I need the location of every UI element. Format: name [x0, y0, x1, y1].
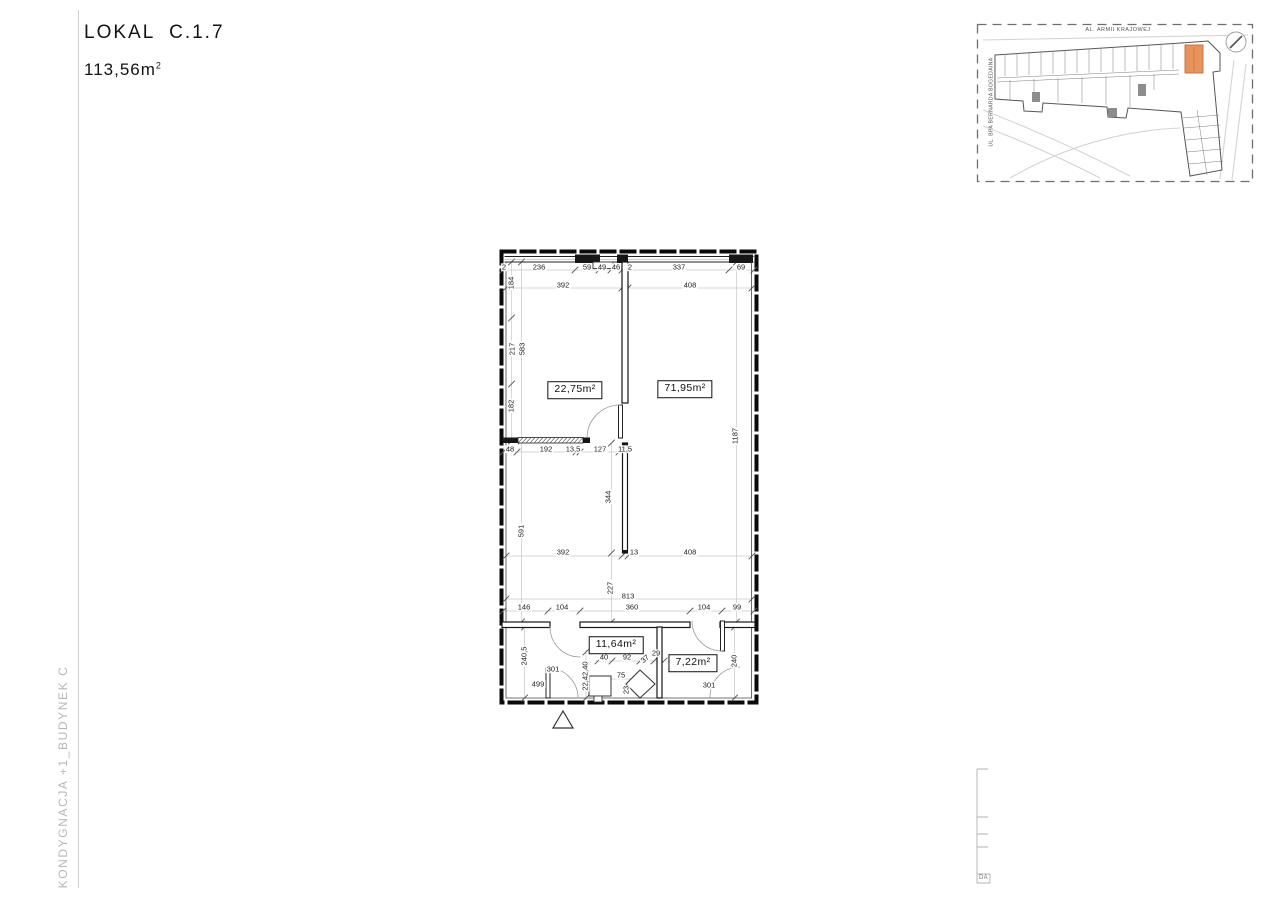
dimension-label: 240,5	[520, 646, 528, 667]
dimension-label: 146	[517, 603, 532, 611]
dimension-label: 192	[539, 445, 554, 453]
dimension-label: 104	[555, 603, 570, 611]
dimension-label: 240	[730, 654, 738, 669]
street-label-top: AL. ARMII KRAJOWEJ	[1058, 27, 1178, 33]
dimension-label: 227	[606, 581, 614, 596]
dimension-label: 127	[593, 445, 608, 453]
room-area-label: 22,75m²	[547, 381, 602, 399]
entrance-marker-icon	[553, 711, 573, 728]
area-value: 113,56m	[84, 60, 156, 79]
dimension-label: 1187	[731, 427, 739, 445]
dimension-label: 499	[531, 680, 546, 688]
north-arrow-icon	[1226, 32, 1246, 52]
room-area-label: 7,22m²	[668, 654, 717, 672]
street-label-left: UL. BPA BERNARDA BOGEDAINA	[989, 45, 995, 160]
dimension-label: 408	[683, 281, 698, 289]
dimension-label: 344	[604, 490, 612, 505]
dimension-label: 22,42,40	[581, 660, 589, 691]
area-superscript: 2	[156, 60, 162, 70]
dimension-label: 360	[625, 603, 640, 611]
page-title: LOKAL C.1.7	[84, 22, 225, 44]
dimension-label: 184	[507, 276, 515, 291]
highlighted-unit	[1185, 45, 1203, 73]
title-block	[977, 769, 990, 883]
dimension-label: 46	[611, 263, 621, 271]
dimension-label: 408	[683, 548, 698, 556]
dimension-label: 99	[732, 603, 742, 611]
dimension-label: 13	[629, 548, 639, 556]
dimension-label: 217	[508, 342, 516, 357]
dimension-label: 301	[702, 681, 717, 689]
drawing-linework	[0, 0, 1280, 905]
dimension-label: 23	[622, 685, 630, 695]
dimension-label: 583	[518, 342, 526, 357]
dimension-label: 392	[556, 548, 571, 556]
dimension-label: 13,5	[565, 445, 582, 453]
dimension-label: 69	[736, 263, 746, 271]
dimension-label: 75	[616, 671, 626, 679]
title-block-label: DA	[979, 875, 988, 881]
dimension-label: 236	[532, 263, 547, 271]
dimension-label: 337	[672, 263, 687, 271]
unit-area: 113,56m2	[84, 60, 162, 80]
dimension-label: 591	[517, 524, 525, 539]
floor-building-label: KONDYGNACJA +1_BUDYNEK C	[56, 661, 70, 893]
dimension-label: 40	[599, 653, 609, 661]
dimension-label: 48	[505, 445, 515, 453]
site-map	[978, 25, 1253, 182]
dimension-label: 11,5	[617, 445, 633, 453]
dimension-label: 392	[556, 281, 571, 289]
dimension-label: 182	[507, 399, 515, 414]
dimension-label: 2	[627, 263, 633, 271]
wc-fixture	[626, 670, 655, 698]
dimension-label: 59	[582, 263, 592, 271]
sheet: LOKAL C.1.7 113,56m2 KONDYGNACJA +1_BUDY…	[0, 0, 1280, 905]
dimension-label: 104	[697, 603, 712, 611]
dimension-label: 301	[546, 665, 561, 673]
dimension-label: 92	[622, 653, 632, 661]
dimension-label: 813	[621, 592, 636, 600]
room-area-label: 11,64m²	[589, 636, 644, 654]
dimension-label: 49	[597, 263, 607, 271]
dimension-label: 29	[651, 649, 661, 657]
dimension-label: 2	[501, 263, 507, 271]
room-area-label: 71,95m²	[657, 380, 712, 398]
